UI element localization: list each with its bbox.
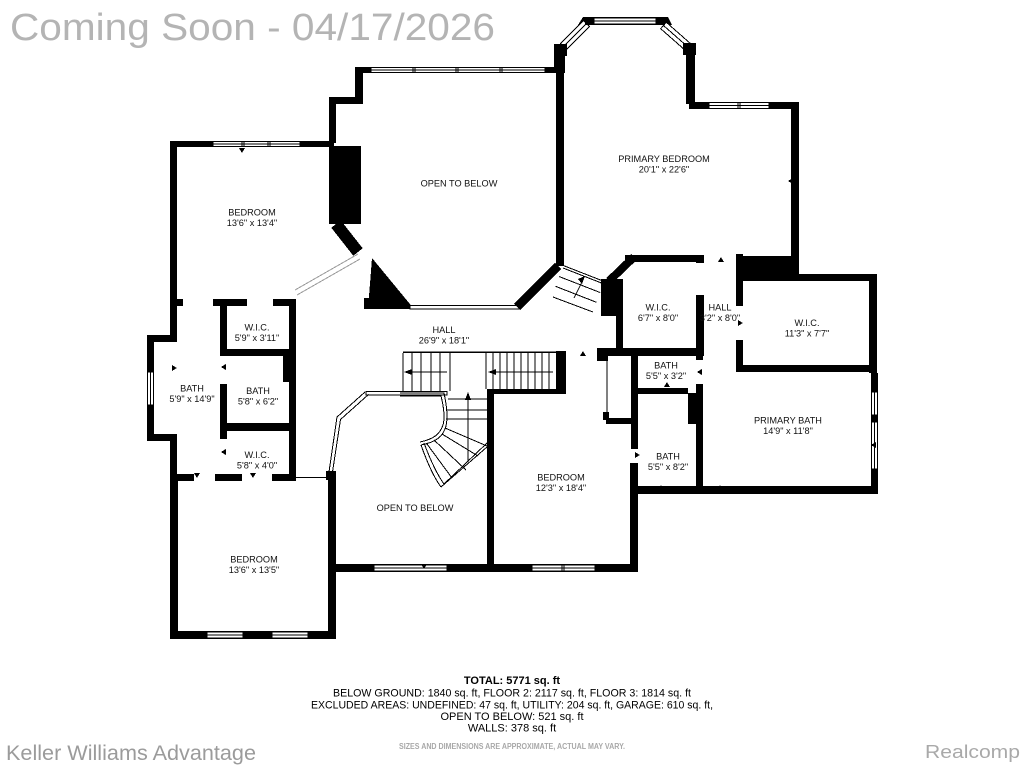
svg-text:W.I.C.: W.I.C. — [244, 323, 269, 333]
svg-text:Coming Soon - 04/17/2026: Coming Soon - 04/17/2026 — [10, 7, 495, 49]
svg-text:Keller Williams Advantage: Keller Williams Advantage — [6, 741, 256, 765]
svg-text:13'6" x 13'4": 13'6" x 13'4" — [227, 218, 277, 228]
svg-text:5'9" x 14'9": 5'9" x 14'9" — [169, 394, 214, 404]
svg-text:PRIMARY BATH: PRIMARY BATH — [754, 416, 822, 426]
svg-text:SIZES AND DIMENSIONS ARE APPRO: SIZES AND DIMENSIONS ARE APPROXIMATE, AC… — [399, 742, 625, 751]
svg-text:20'1" x 22'6": 20'1" x 22'6" — [639, 165, 689, 175]
svg-text:PRIMARY BEDROOM: PRIMARY BEDROOM — [618, 154, 710, 164]
svg-text:Realcomp: Realcomp — [925, 741, 1020, 762]
svg-text:5'8" x 6'2": 5'8" x 6'2" — [238, 397, 278, 407]
svg-text:BEDROOM: BEDROOM — [537, 473, 584, 483]
svg-text:6'7" x 8'0": 6'7" x 8'0" — [638, 313, 678, 323]
svg-text:BEDROOM: BEDROOM — [230, 555, 277, 565]
svg-text:BATH: BATH — [246, 386, 270, 396]
svg-text:OPEN TO BELOW: 521 sq. ft: OPEN TO BELOW: 521 sq. ft — [440, 711, 583, 723]
svg-text:11'3" x 7'7": 11'3" x 7'7" — [785, 329, 830, 339]
svg-text:3'2" x 8'0": 3'2" x 8'0" — [700, 313, 740, 323]
svg-text:HALL: HALL — [433, 325, 456, 335]
svg-text:26'9" x 18'1": 26'9" x 18'1" — [419, 336, 469, 346]
svg-text:5'8" x 4'0": 5'8" x 4'0" — [237, 461, 277, 471]
svg-text:WALLS: 378 sq. ft: WALLS: 378 sq. ft — [468, 723, 556, 735]
svg-text:BATH: BATH — [654, 361, 678, 371]
svg-text:5'5" x 3'2": 5'5" x 3'2" — [646, 371, 686, 381]
svg-text:12'3" x 18'4": 12'3" x 18'4" — [536, 483, 586, 493]
svg-text:W.I.C.: W.I.C. — [794, 318, 819, 328]
svg-text:EXCLUDED AREAS: UNDEFINED: 47: EXCLUDED AREAS: UNDEFINED: 47 sq. ft, UT… — [311, 700, 713, 712]
svg-text:BELOW GROUND: 1840 sq. ft, FLO: BELOW GROUND: 1840 sq. ft, FLOOR 2: 2117… — [333, 688, 691, 700]
svg-text:14'9" x 11'8": 14'9" x 11'8" — [763, 426, 813, 436]
svg-text:HALL: HALL — [709, 303, 732, 313]
svg-text:OPEN TO BELOW: OPEN TO BELOW — [421, 179, 498, 189]
svg-text:BATH: BATH — [656, 452, 680, 462]
svg-text:5'5" x 8'2": 5'5" x 8'2" — [648, 462, 688, 472]
svg-text:OPEN TO BELOW: OPEN TO BELOW — [377, 503, 454, 513]
svg-text:BEDROOM: BEDROOM — [228, 208, 275, 218]
svg-text:5'9" x 3'11": 5'9" x 3'11" — [235, 333, 280, 343]
svg-text:W.I.C.: W.I.C. — [244, 450, 269, 460]
svg-text:W.I.C.: W.I.C. — [645, 303, 670, 313]
svg-text:13'6" x 13'5": 13'6" x 13'5" — [229, 565, 279, 575]
svg-text:BATH: BATH — [180, 384, 204, 394]
svg-text:TOTAL: 5771 sq. ft: TOTAL: 5771 sq. ft — [464, 675, 561, 687]
